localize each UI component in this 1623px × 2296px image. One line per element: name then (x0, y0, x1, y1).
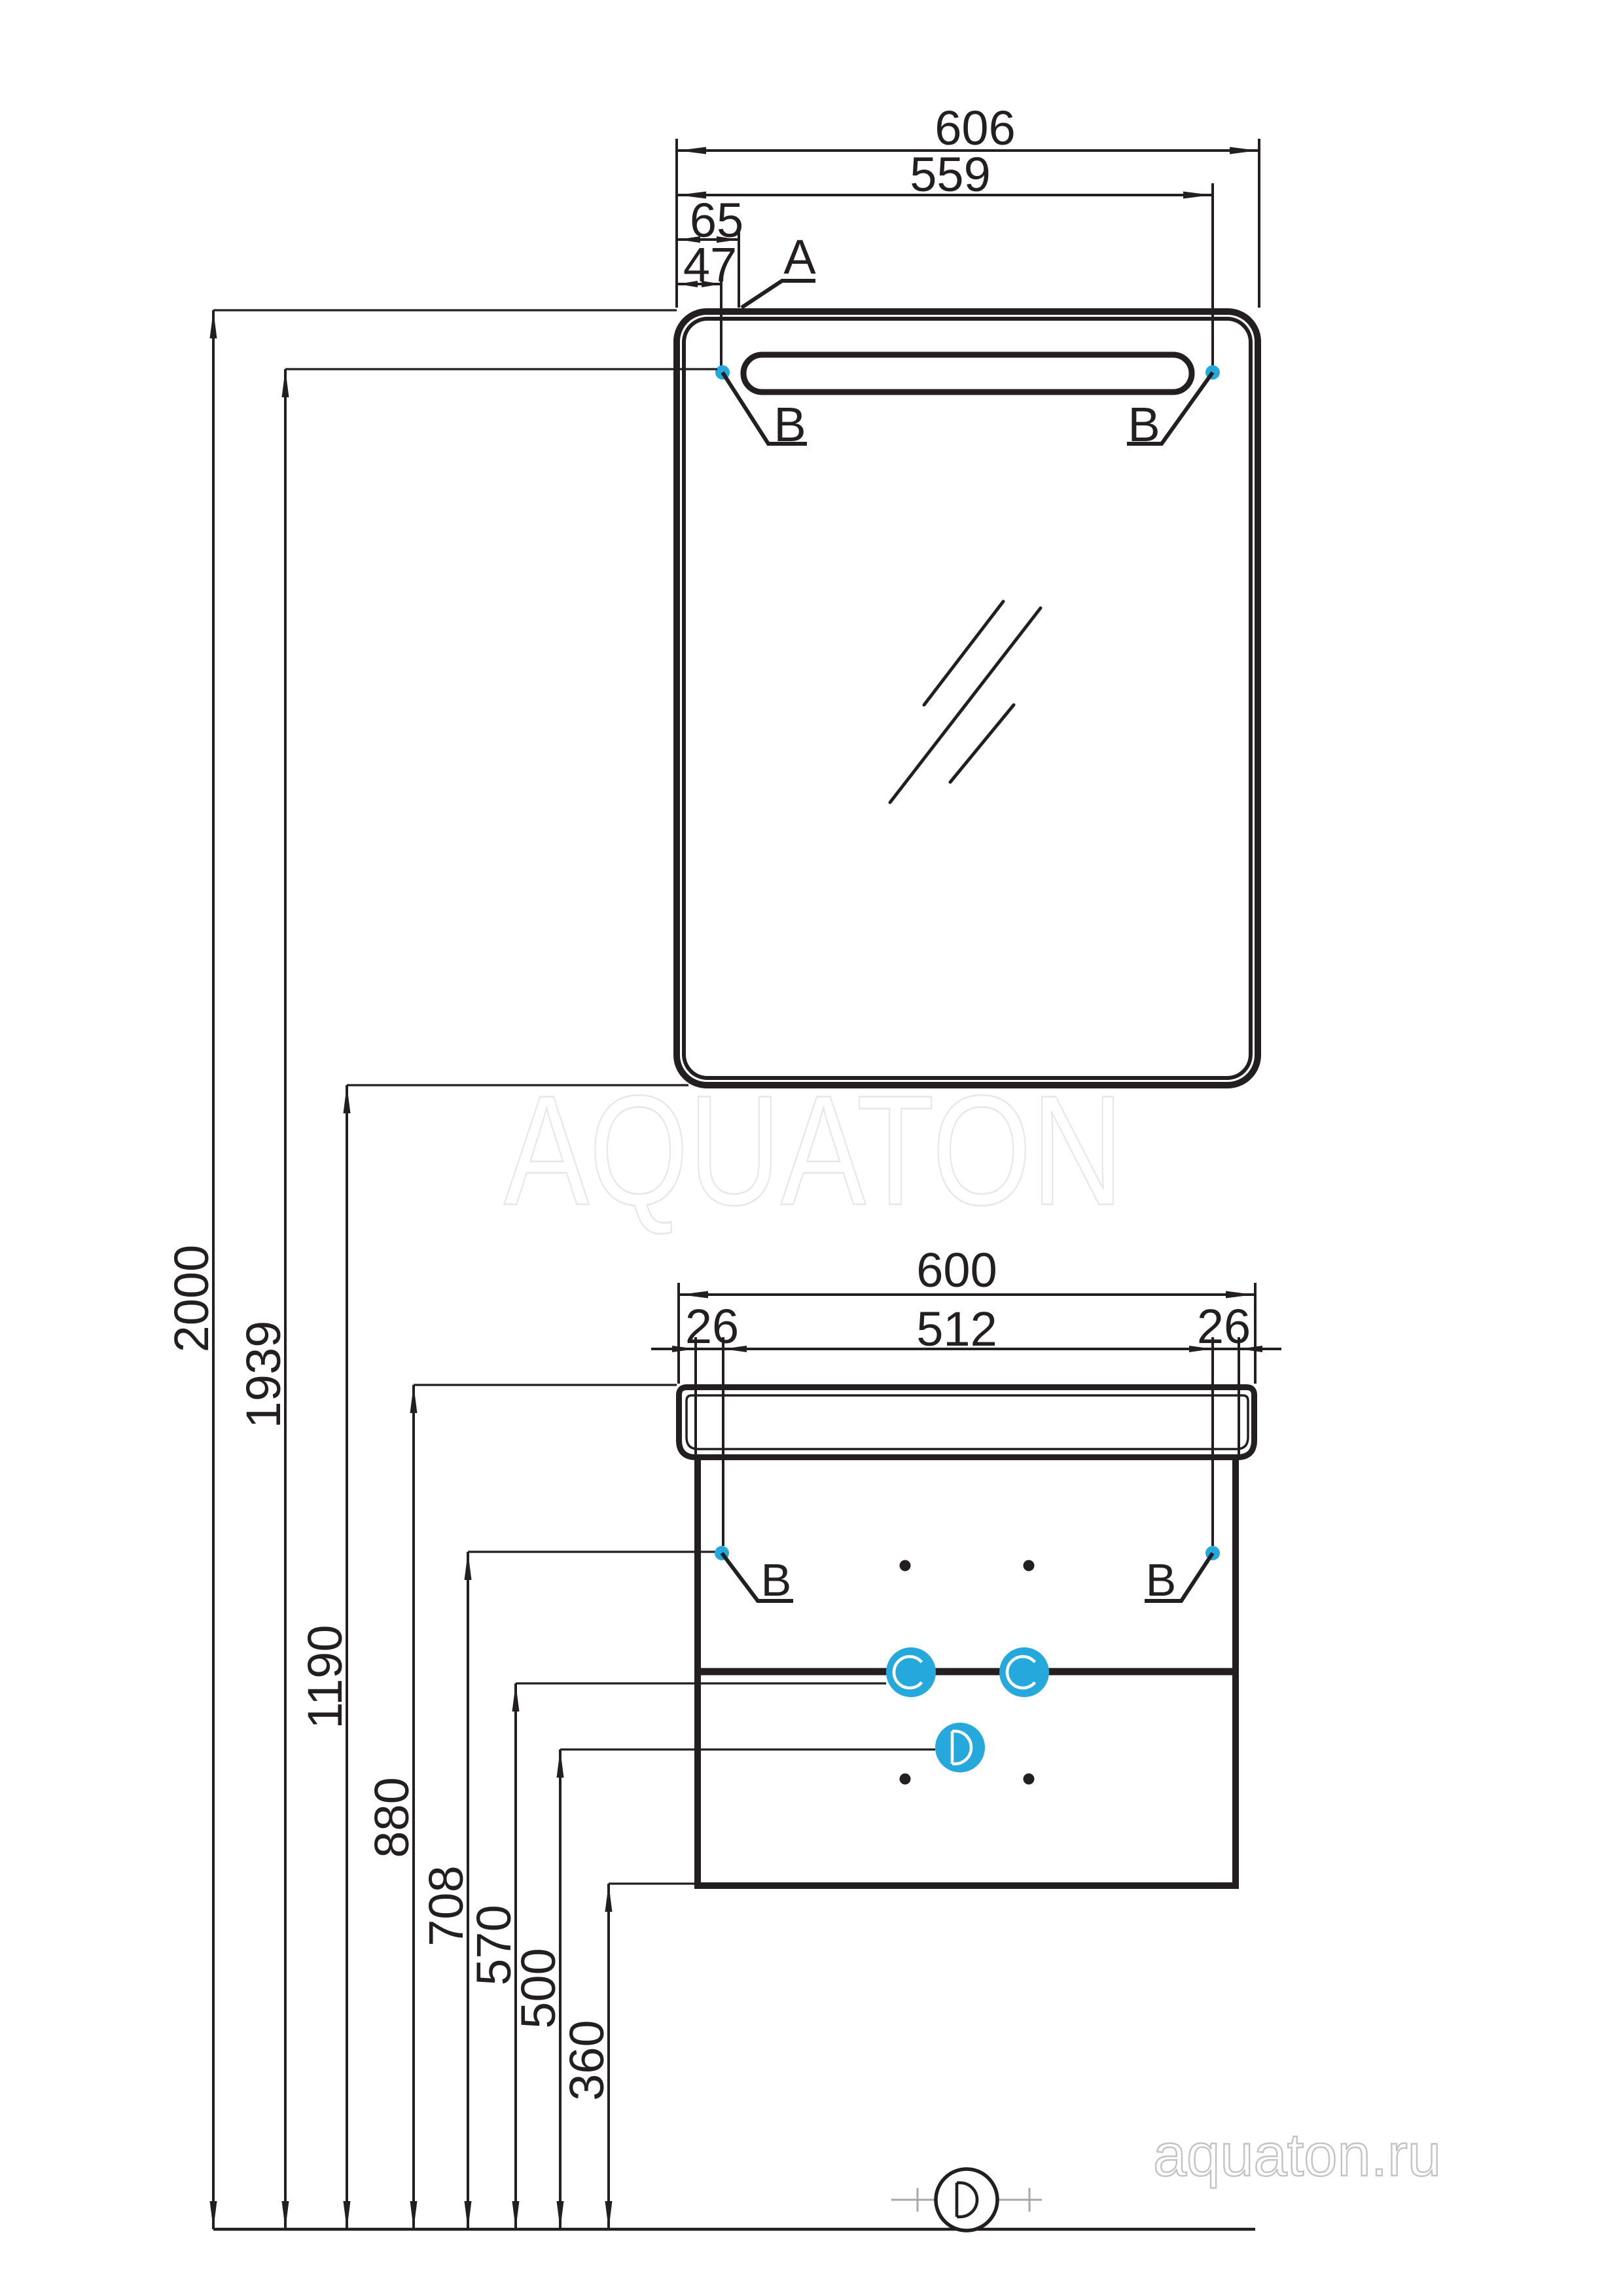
svg-text:559: 559 (910, 147, 990, 202)
svg-text:26: 26 (685, 1299, 739, 1354)
svg-text:A: A (783, 230, 816, 284)
svg-text:500: 500 (511, 1948, 565, 2028)
svg-text:aquaton.ru: aquaton.ru (1153, 2122, 1441, 2189)
svg-text:2000: 2000 (164, 1245, 219, 1353)
svg-text:1939: 1939 (236, 1321, 291, 1429)
svg-text:600: 600 (916, 1243, 997, 1297)
svg-text:AQUATON: AQUATON (504, 1063, 1124, 1238)
svg-text:880: 880 (365, 1777, 419, 1857)
svg-text:47: 47 (683, 238, 737, 292)
svg-text:B: B (774, 397, 806, 452)
svg-text:512: 512 (916, 1302, 997, 1356)
svg-text:1190: 1190 (298, 1624, 352, 1729)
svg-text:26: 26 (1197, 1299, 1251, 1354)
svg-text:B: B (1128, 397, 1160, 452)
svg-text:B: B (761, 1554, 792, 1605)
svg-text:360: 360 (560, 2020, 614, 2100)
svg-text:B: B (1146, 1554, 1177, 1605)
svg-text:708: 708 (419, 1865, 473, 1946)
